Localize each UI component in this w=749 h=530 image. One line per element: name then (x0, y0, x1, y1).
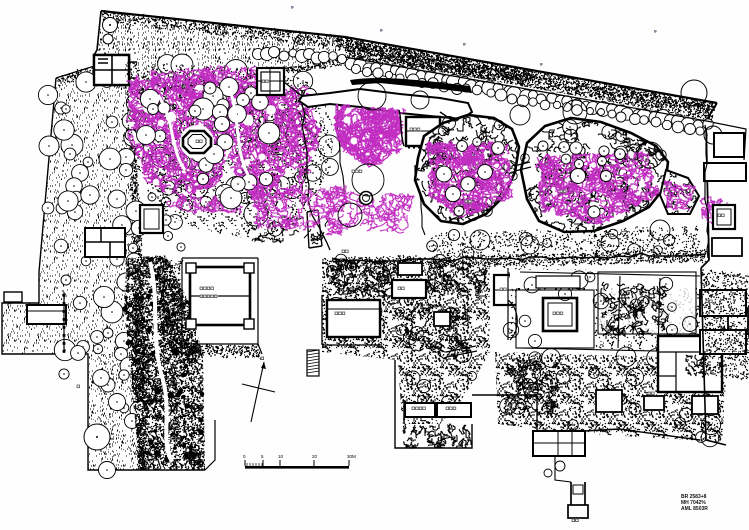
svg-text:AML 8503R: AML 8503R (681, 506, 708, 512)
svg-text:10: 10 (278, 454, 284, 459)
svg-text:30M: 30M (347, 454, 356, 459)
svg-text:20: 20 (312, 454, 318, 459)
